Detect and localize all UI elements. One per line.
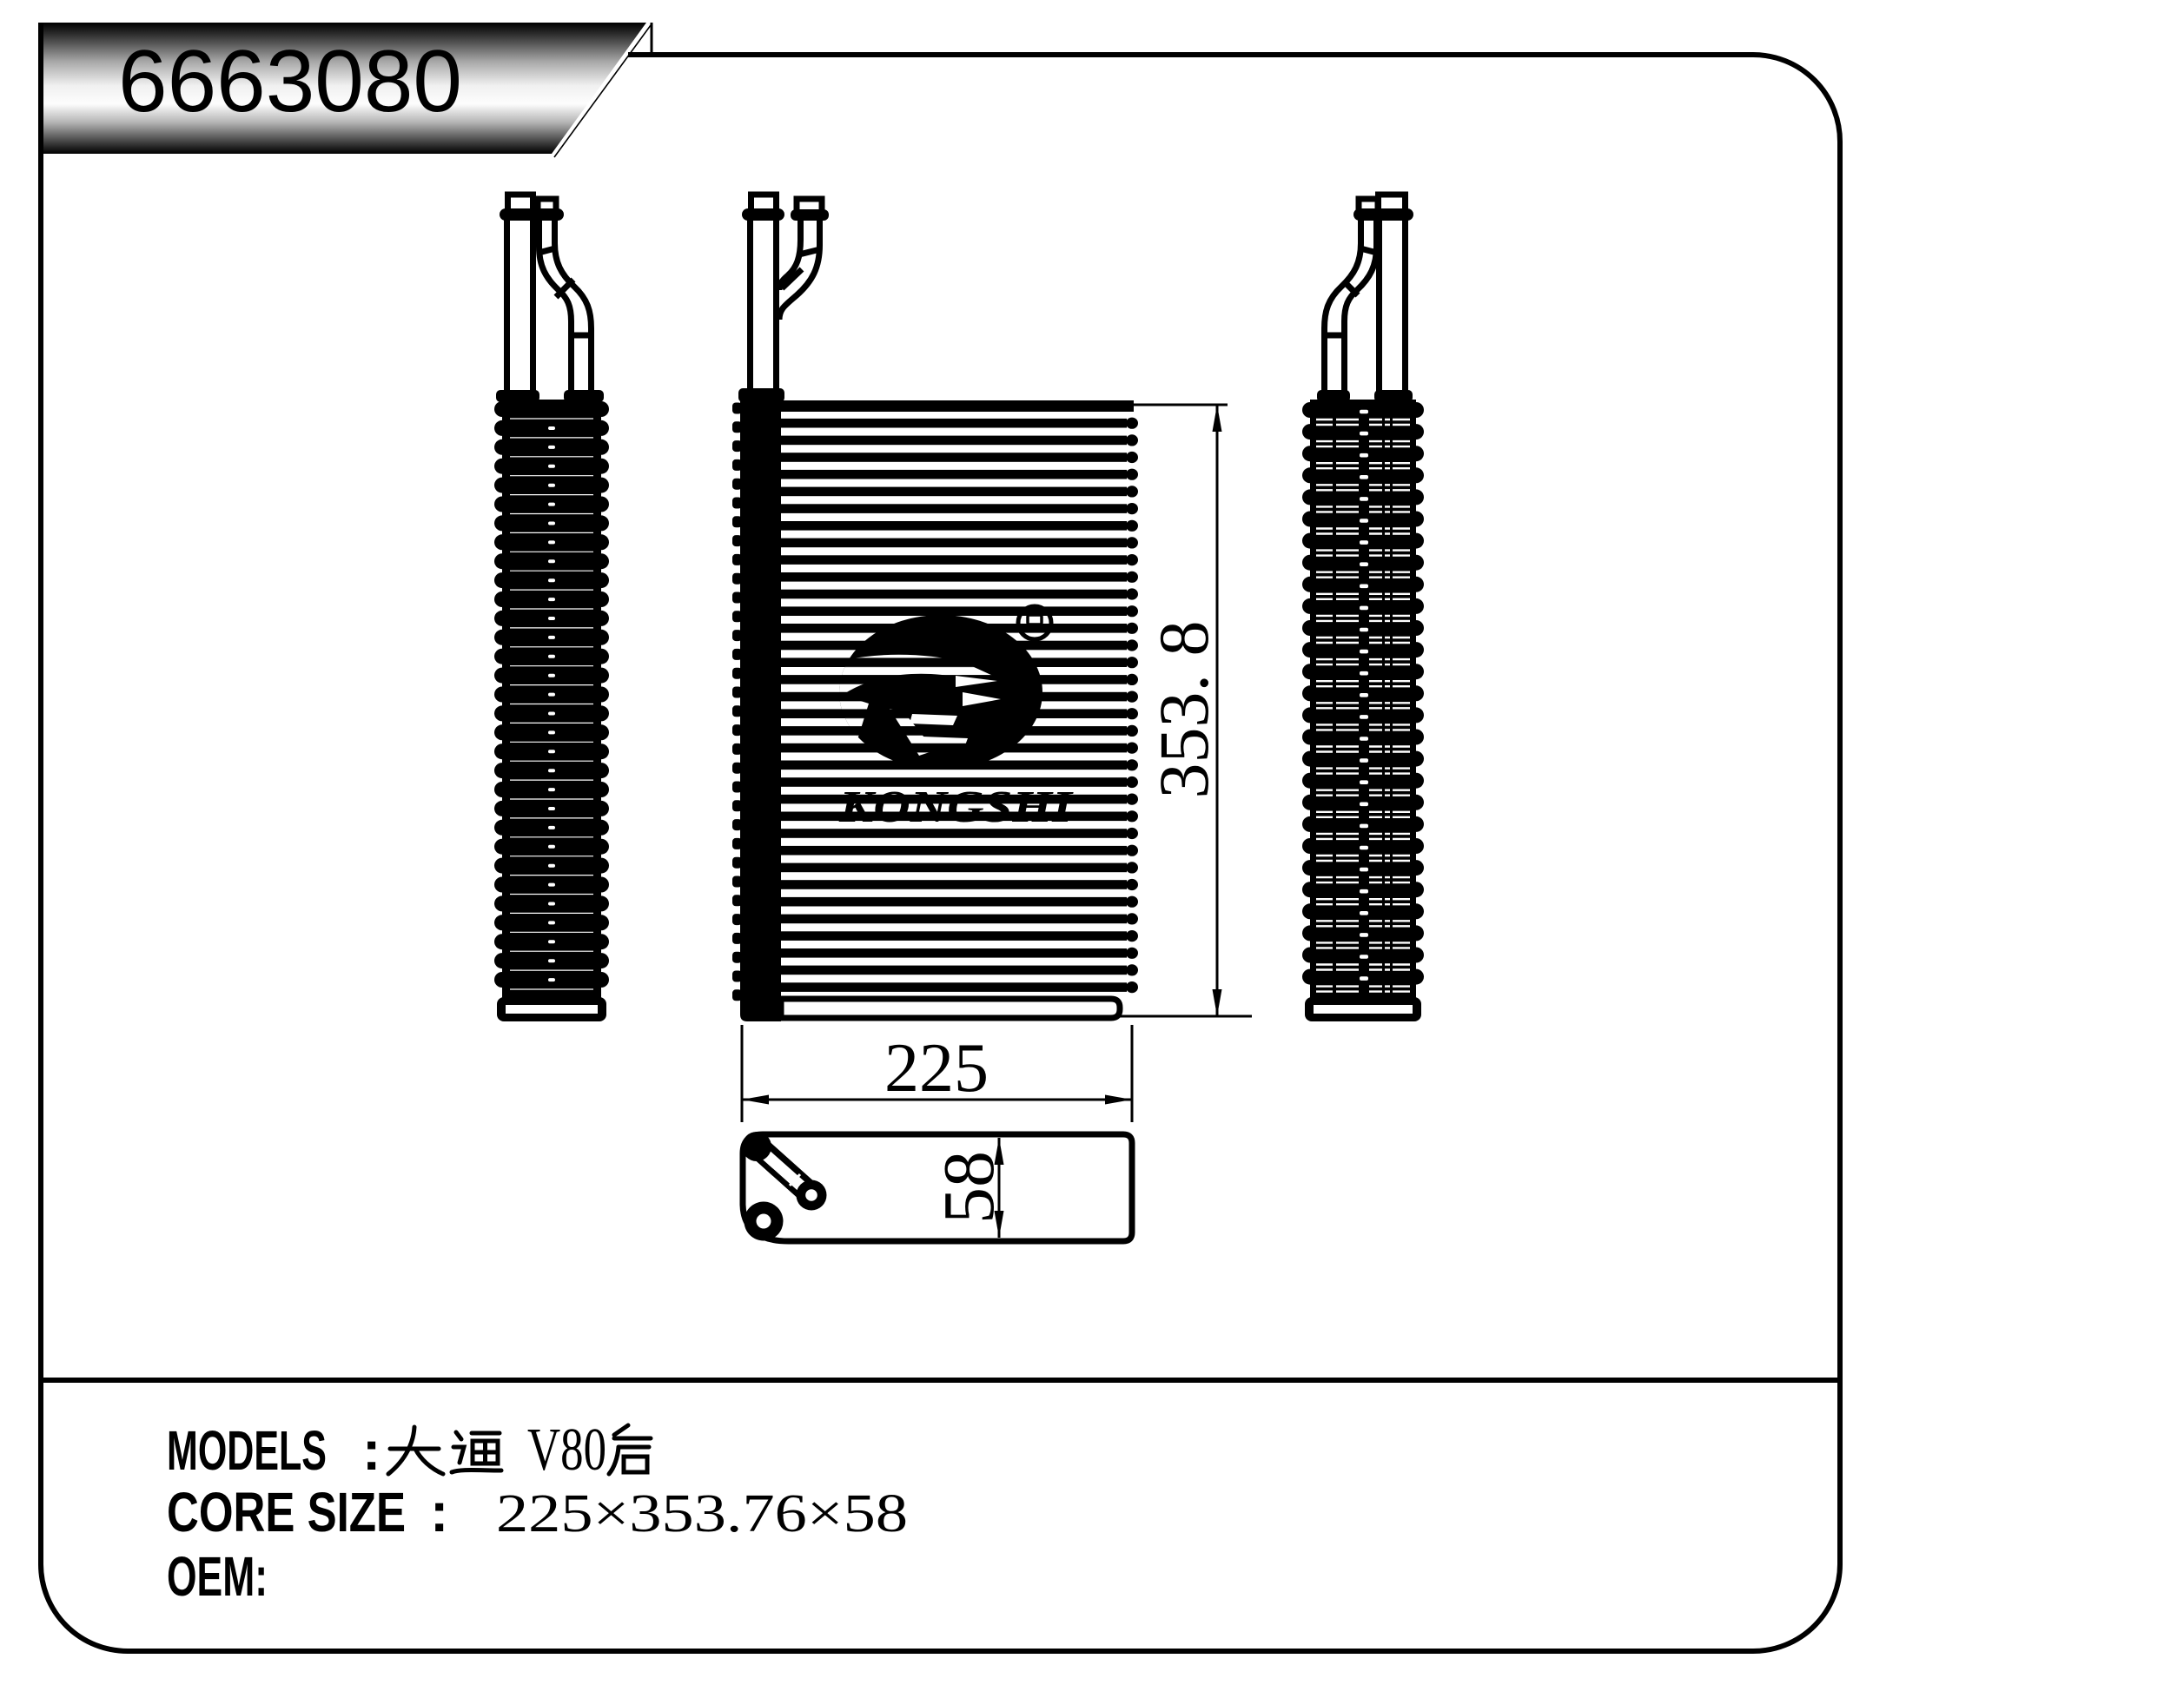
svg-text:KONGSHI: KONGSHI [838,783,1074,832]
svg-text:353. 8: 353. 8 [1144,621,1223,799]
svg-text:225×353.76×58: 225×353.76×58 [496,1484,908,1543]
svg-text:CORE SIZE: CORE SIZE [167,1481,406,1543]
svg-text:6663080: 6663080 [118,33,462,130]
svg-text::: : [362,1419,381,1482]
svg-text::: : [430,1481,448,1543]
svg-text:MODELS: MODELS [167,1419,327,1482]
svg-text:225: 225 [884,1030,989,1107]
svg-text:58: 58 [929,1151,1009,1224]
svg-text:V80: V80 [527,1417,606,1483]
svg-text:OEM:: OEM: [167,1545,268,1608]
